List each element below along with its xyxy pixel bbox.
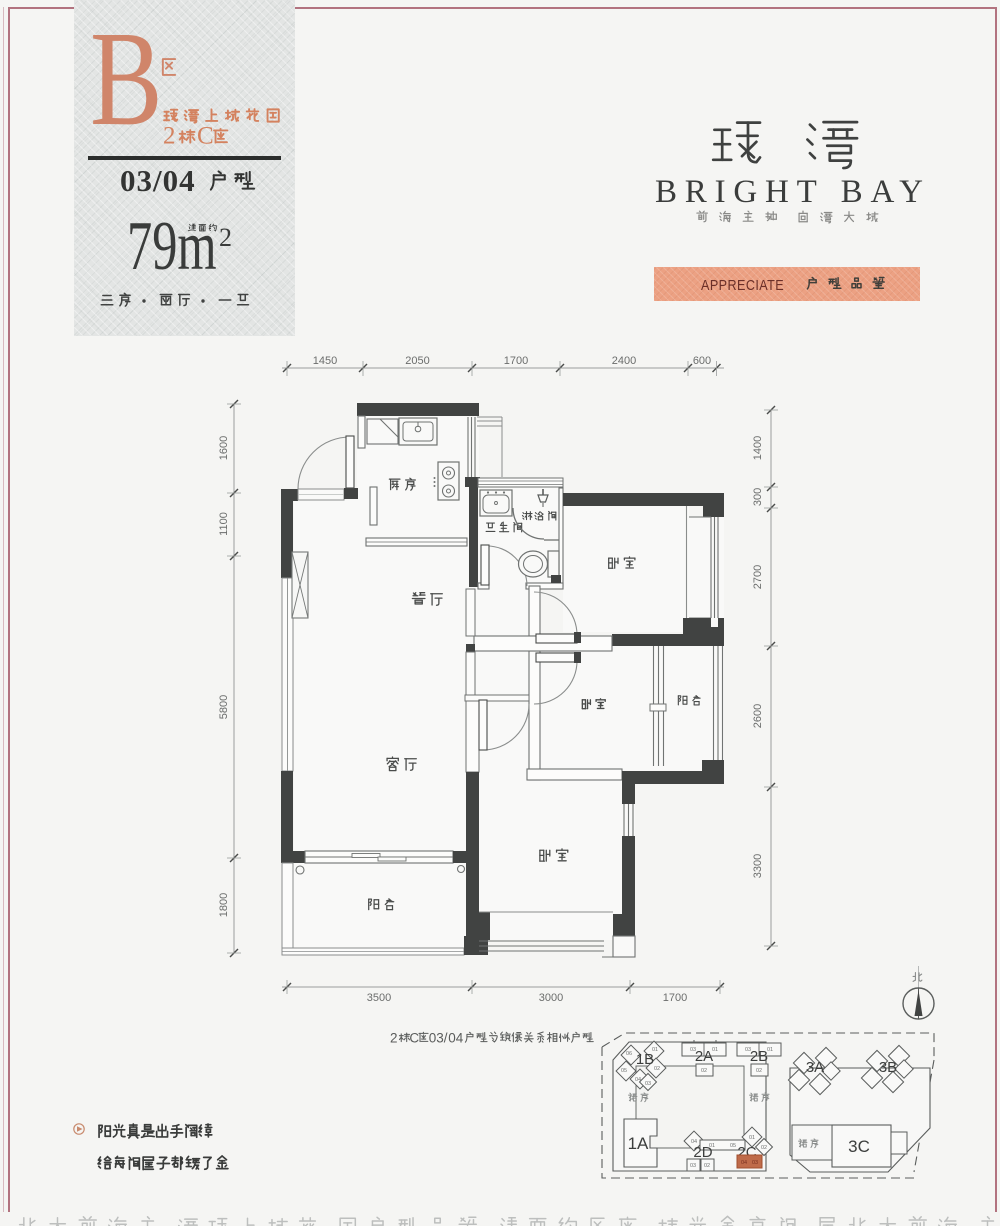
svg-text:/: / [444, 1030, 448, 1045]
svg-text:2600: 2600 [752, 704, 764, 728]
svg-text:1B: 1B [636, 1051, 654, 1068]
svg-text:0: 0 [448, 1030, 456, 1045]
svg-text:2D: 2D [693, 1144, 712, 1161]
svg-text:5800: 5800 [218, 695, 230, 719]
svg-text:C: C [409, 1030, 419, 1045]
svg-text:2700: 2700 [752, 565, 764, 589]
svg-text:1100: 1100 [218, 512, 230, 536]
svg-text:1800: 1800 [218, 893, 230, 917]
svg-text:1A: 1A [628, 1134, 649, 1153]
svg-text:3C: 3C [848, 1137, 870, 1156]
svg-text:2400: 2400 [612, 355, 636, 367]
svg-text:03: 03 [690, 1163, 696, 1169]
svg-text:3500: 3500 [367, 992, 391, 1004]
svg-text:02: 02 [756, 1068, 762, 1074]
svg-text:02: 02 [761, 1145, 767, 1151]
svg-text:1700: 1700 [663, 992, 687, 1004]
svg-text:1600: 1600 [218, 436, 230, 460]
svg-text:2050: 2050 [405, 355, 429, 367]
svg-text:4: 4 [456, 1030, 464, 1045]
svg-text:03: 03 [752, 1160, 758, 1166]
svg-text:01: 01 [749, 1135, 755, 1141]
svg-text:3B: 3B [879, 1059, 897, 1076]
svg-text:3300: 3300 [752, 854, 764, 878]
svg-text:3: 3 [436, 1030, 444, 1045]
svg-text:3000: 3000 [539, 992, 563, 1004]
svg-text:05: 05 [730, 1143, 736, 1149]
svg-text:02: 02 [701, 1068, 707, 1074]
svg-text:1700: 1700 [504, 355, 528, 367]
svg-text:04: 04 [635, 1077, 641, 1083]
svg-text:2A: 2A [695, 1048, 713, 1065]
svg-text:05: 05 [621, 1068, 627, 1074]
svg-text:06: 06 [626, 1051, 632, 1057]
svg-text:02: 02 [654, 1066, 660, 1072]
svg-text:02: 02 [704, 1163, 710, 1169]
svg-text:600: 600 [693, 355, 711, 367]
svg-text:2B: 2B [750, 1048, 768, 1065]
svg-text:2: 2 [390, 1030, 398, 1045]
svg-text:1400: 1400 [752, 436, 764, 460]
svg-text:04: 04 [741, 1160, 747, 1166]
svg-text:300: 300 [752, 488, 764, 506]
svg-text:03: 03 [645, 1081, 651, 1087]
svg-text:3A: 3A [806, 1059, 824, 1076]
svg-text:0: 0 [429, 1030, 437, 1045]
svg-text:1450: 1450 [313, 355, 337, 367]
